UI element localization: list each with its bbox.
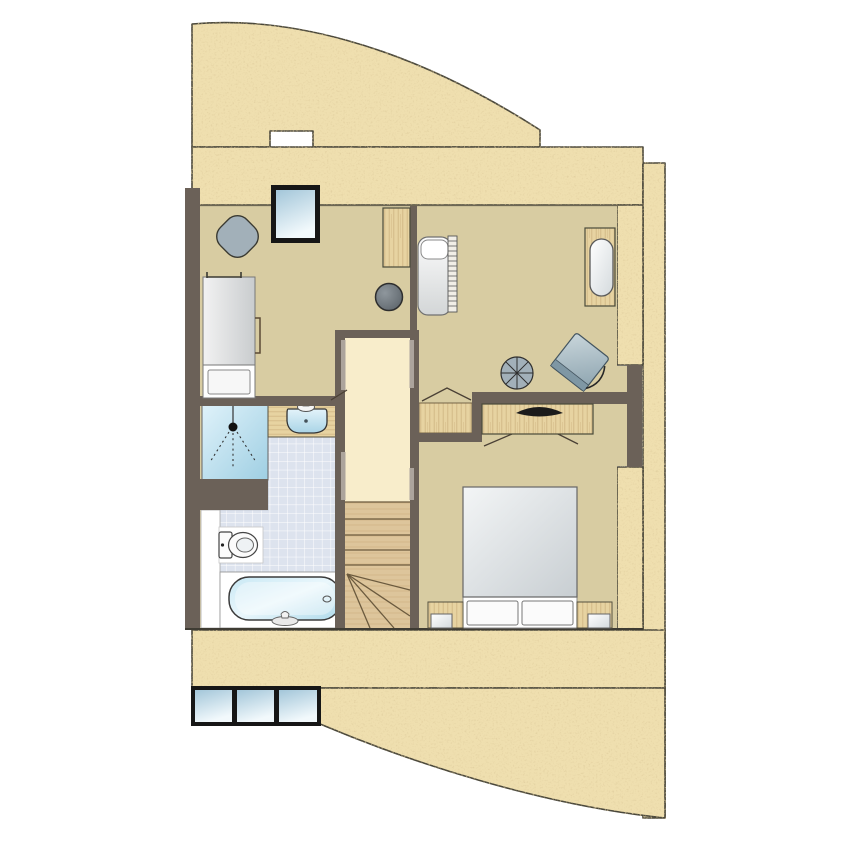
wall-master-top xyxy=(482,392,642,404)
wall-left xyxy=(185,188,200,630)
shower-tray xyxy=(202,405,268,480)
nightstand-left xyxy=(428,602,463,628)
wall-bedroom-door-stub xyxy=(472,392,482,442)
wall-stairhall-top xyxy=(335,330,419,338)
bathroom xyxy=(201,402,342,628)
wall-shower-bottom xyxy=(200,479,268,510)
basin-drain xyxy=(304,419,308,423)
bathtub xyxy=(229,577,341,626)
skylight-window xyxy=(271,185,320,243)
window-pane-3 xyxy=(279,690,317,722)
landing xyxy=(419,403,472,433)
toilet xyxy=(219,527,263,563)
roof-curved-bottom xyxy=(320,688,665,818)
single-bed-duvet xyxy=(203,277,255,365)
cot-lounger xyxy=(585,228,615,306)
wall-middle-upper xyxy=(410,206,417,332)
nightstand-right xyxy=(577,602,612,628)
double-bed-pillow-left xyxy=(467,601,518,625)
wardrobe-shelf xyxy=(383,208,410,267)
wall-landing-bottom xyxy=(419,433,472,442)
lounge-chair xyxy=(418,237,451,315)
roof-band-bottom xyxy=(192,630,665,688)
round-table xyxy=(501,357,533,389)
skylight-glass xyxy=(276,190,315,238)
double-bed xyxy=(463,487,577,628)
toilet-button xyxy=(221,543,224,546)
shower-head xyxy=(229,423,238,432)
washbasin-counter xyxy=(268,402,342,437)
wall-notch-right xyxy=(627,365,642,467)
tv-dresser xyxy=(482,404,593,434)
double-bed-pillow-right xyxy=(522,601,573,625)
floor-plan-page xyxy=(0,0,844,844)
roof-band-top xyxy=(192,147,643,205)
roof-curved-top xyxy=(192,23,540,147)
floor-stair-hall-cream xyxy=(345,338,410,504)
stool xyxy=(376,284,403,311)
roof-strip-inner-lower xyxy=(617,467,643,630)
single-bed-pillow xyxy=(208,370,250,394)
double-bed-duvet xyxy=(463,487,577,597)
radiator xyxy=(448,236,457,312)
bottom-window-row xyxy=(191,686,321,726)
shower xyxy=(202,405,268,480)
floor-plan-canvas xyxy=(0,0,844,844)
floor-notch-tan xyxy=(617,366,628,466)
toilet-bowl-inner xyxy=(237,538,254,552)
bathroom-ledge xyxy=(201,510,220,628)
cot-body xyxy=(590,239,613,296)
lounge-chair-pillow xyxy=(421,240,448,259)
bathtub-inner xyxy=(235,582,335,615)
window-pane-2 xyxy=(237,690,274,722)
roof-strip-inner-upper xyxy=(617,205,643,365)
single-bed xyxy=(203,272,255,398)
window-pane-1 xyxy=(195,690,232,722)
